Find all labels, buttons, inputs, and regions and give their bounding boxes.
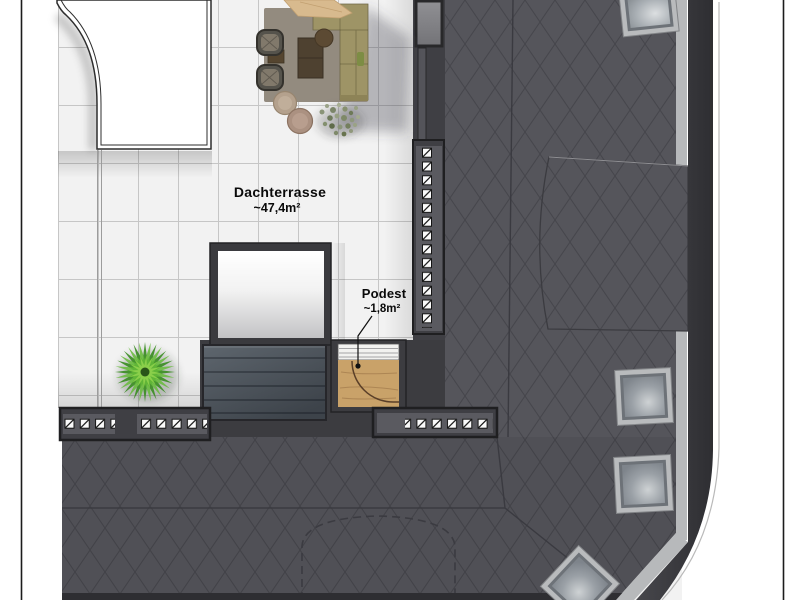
skylight-right-1 [615, 368, 674, 426]
glass-panel [416, 1, 442, 46]
edge-post [418, 48, 426, 140]
plant-center [141, 368, 150, 377]
railing-vertical [413, 140, 444, 334]
round-side-table [315, 29, 333, 47]
footprint-bottom-shadow [58, 151, 212, 178]
dormer-outline [540, 157, 688, 331]
podium-leader-dot [355, 363, 360, 368]
box-shadow [331, 243, 345, 345]
podium-label: Podest [362, 286, 407, 301]
terrace-area-label: ~47,4m² [254, 201, 301, 215]
podium-steps [338, 344, 399, 360]
pouf-2 [288, 109, 313, 134]
skylight-top-right [619, 0, 680, 37]
railing-bottom-left [60, 408, 210, 440]
wicker-chair-2 [257, 65, 283, 90]
podium-wood-deck [338, 360, 399, 407]
sofa-armrest [340, 95, 368, 101]
plan-canvas: Dachterrasse ~47,4m² Podest ~1,8m² [0, 0, 800, 600]
stair-skylight-box [210, 243, 345, 345]
skylight-right-2 [614, 455, 674, 514]
wicker-chair-1 [257, 30, 283, 55]
terrace-label: Dachterrasse [234, 184, 326, 200]
podium-area-label: ~1,8m² [364, 303, 401, 315]
railing-post [115, 410, 137, 438]
railing-bottom-right [373, 408, 497, 437]
roof-terrace-floorplan: Dachterrasse ~47,4m² Podest ~1,8m² [0, 0, 800, 600]
podium-platform [331, 340, 406, 412]
louvered-structure [203, 345, 326, 420]
green-pillow [357, 52, 364, 66]
